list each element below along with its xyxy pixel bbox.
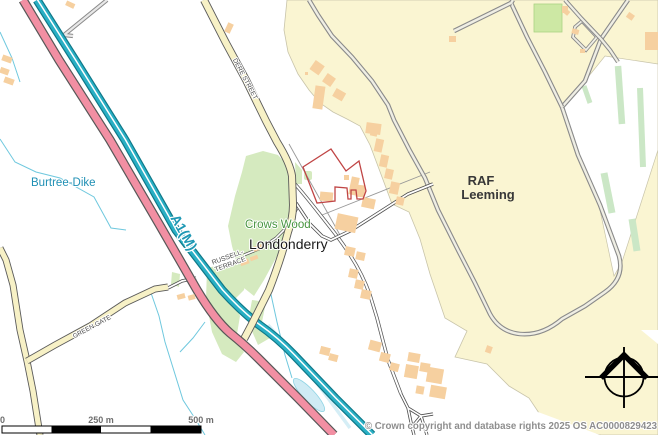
svg-text:0: 0 [0,415,5,425]
svg-text:© Crown copyright and database: © Crown copyright and database rights 20… [365,421,658,432]
svg-text:250 m: 250 m [88,415,114,425]
svg-text:Crows Wood: Crows Wood [245,219,311,231]
svg-text:Leeming: Leeming [461,187,515,202]
svg-text:500 m: 500 m [188,415,214,425]
svg-text:Burtree-Dike: Burtree-Dike [31,177,96,189]
svg-text:Londonderry: Londonderry [249,236,328,252]
svg-text:RAF: RAF [468,173,495,188]
